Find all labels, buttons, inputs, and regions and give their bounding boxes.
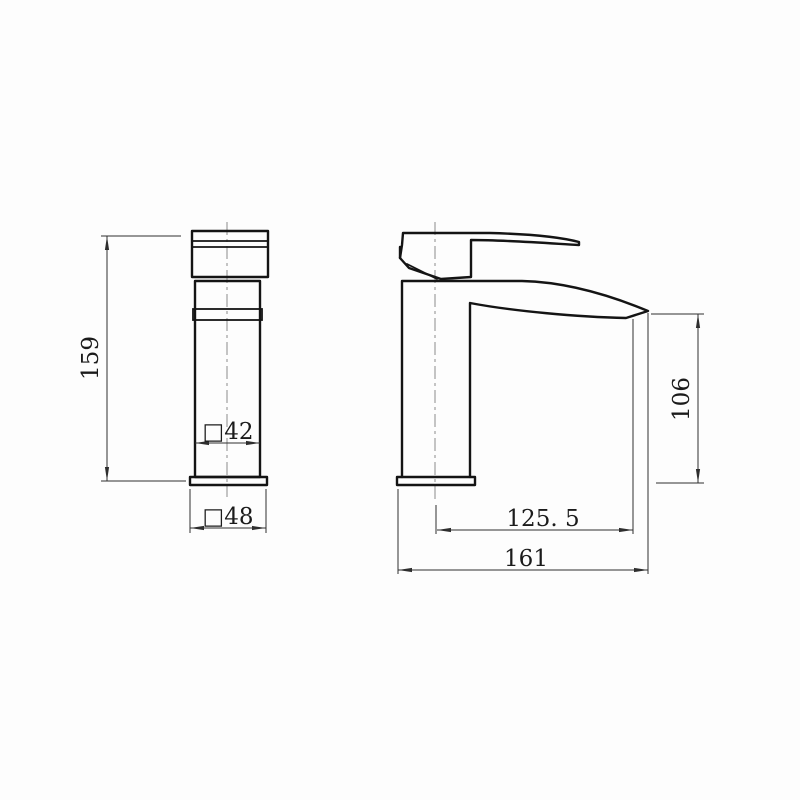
- front-view: [190, 222, 268, 497]
- dimension-height-159: 159: [78, 236, 186, 481]
- dimension-base-width-48: □48: [190, 489, 266, 533]
- front-handle-outline: [192, 231, 268, 277]
- side-handle-inner-edge: [407, 264, 437, 279]
- side-base-plate: [397, 477, 475, 485]
- dim-label-spout-reach: 125. 5: [506, 506, 579, 532]
- dim-label-height: 159: [78, 336, 104, 380]
- dimension-spout-reach-125-5: 125. 5: [436, 319, 633, 534]
- side-body-spout-outline: [402, 281, 648, 477]
- dim-label-spout-height: 106: [669, 377, 695, 421]
- drawing-canvas: 159 □42 □48: [0, 0, 800, 800]
- dimension-body-width-42: □42: [195, 419, 260, 445]
- front-base-plate: [190, 477, 267, 485]
- dim-label-base-width: □48: [203, 504, 254, 530]
- side-view: [397, 222, 648, 500]
- drawing-svg: 159 □42 □48: [0, 0, 800, 800]
- dimension-spout-height-106: 106: [651, 314, 704, 483]
- dim-label-total-depth: 161: [504, 546, 548, 572]
- dim-label-body-width: □42: [203, 419, 254, 445]
- side-handle-outline: [400, 233, 579, 279]
